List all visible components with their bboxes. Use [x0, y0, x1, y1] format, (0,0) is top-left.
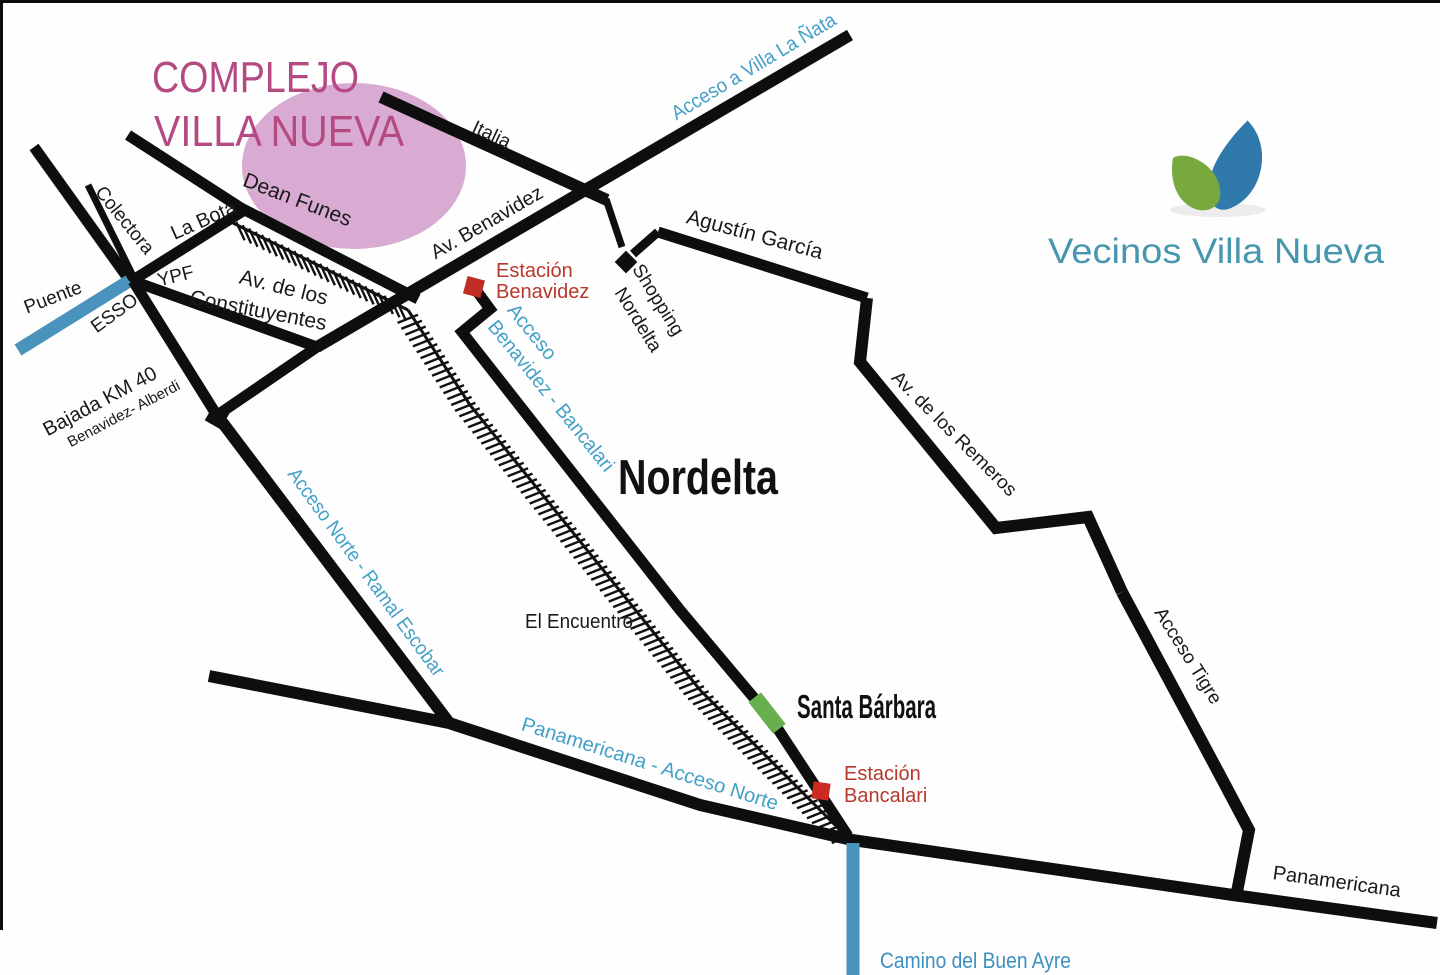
svg-text:Bancalari: Bancalari: [844, 785, 927, 807]
svg-text:Acceso Norte - Ramal Escobar: Acceso Norte - Ramal Escobar: [283, 464, 449, 681]
svg-text:Benavidez: Benavidez: [496, 281, 589, 303]
svg-text:Acceso a Villa La Ñata: Acceso a Villa La Ñata: [667, 7, 841, 125]
svg-text:Vecinos Villa Nueva: Vecinos Villa Nueva: [1048, 232, 1385, 271]
svg-text:Agustín García: Agustín García: [684, 205, 826, 264]
svg-text:El Encuentro: El Encuentro: [525, 611, 633, 633]
svg-text:COMPLEJO: COMPLEJO: [152, 53, 359, 102]
svg-text:Estación: Estación: [496, 260, 573, 282]
svg-text:Camino del Buen Ayre: Camino del Buen Ayre: [880, 948, 1071, 973]
svg-text:Nordelta: Nordelta: [618, 451, 779, 505]
svg-text:VILLA NUEVA: VILLA NUEVA: [154, 107, 405, 156]
svg-text:Estación: Estación: [844, 763, 921, 785]
svg-text:Santa Bárbara: Santa Bárbara: [797, 688, 936, 725]
svg-text:Panamericana: Panamericana: [1271, 862, 1403, 902]
